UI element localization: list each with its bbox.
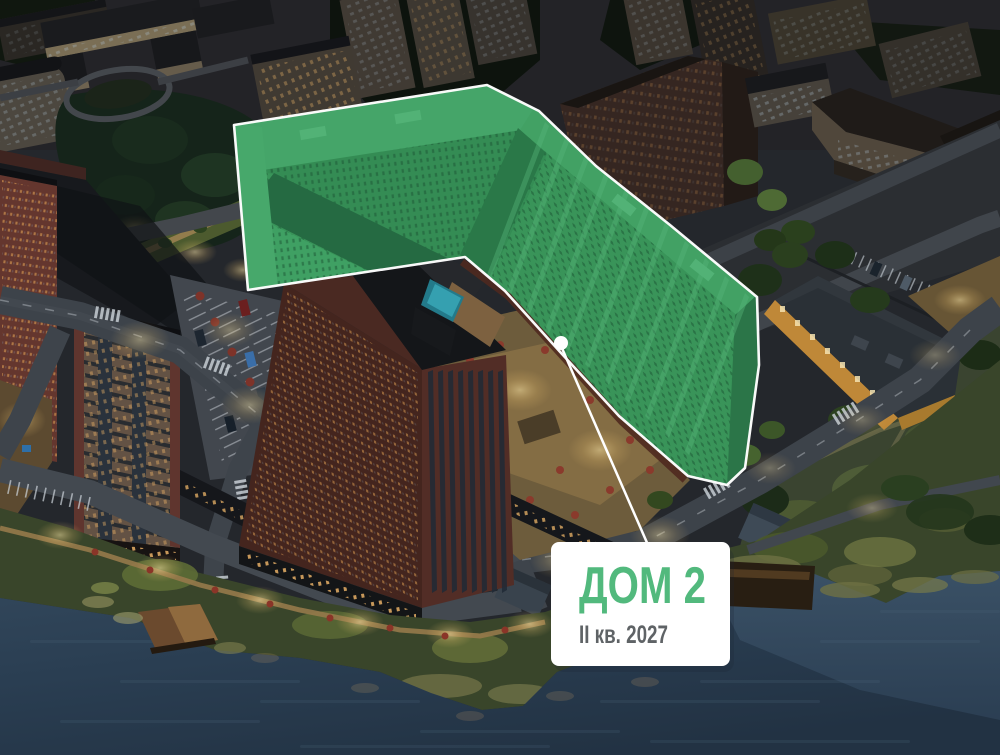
svg-text:ДОМ 2: ДОМ 2 (579, 557, 706, 615)
svg-text:II кв. 2027: II кв. 2027 (579, 621, 668, 649)
